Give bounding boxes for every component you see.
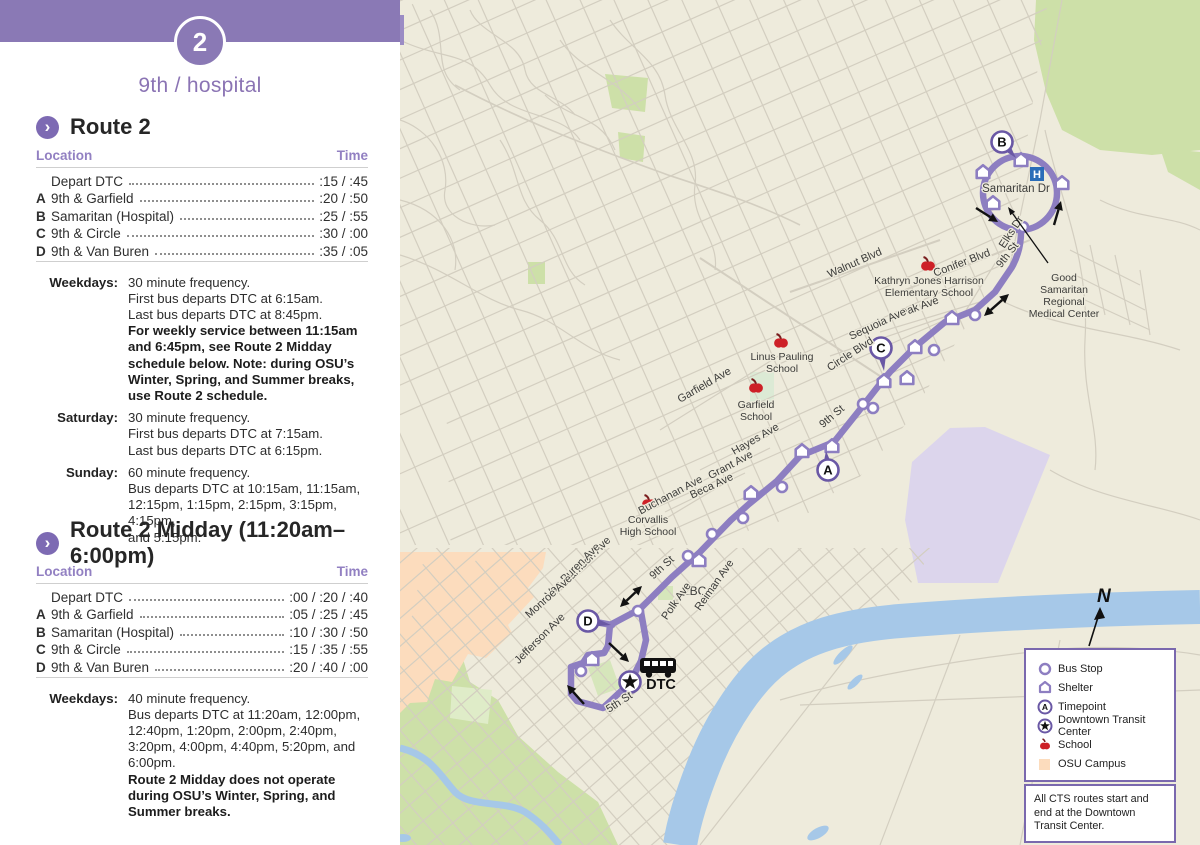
stop-name: Depart DTC	[51, 590, 123, 605]
note-text: 30 minute frequency.First bus departs DT…	[128, 410, 378, 459]
map-label: Samaritan Dr	[982, 183, 1050, 195]
schedule-panel: 2 9th / hospital Route 2 Location Time D…	[0, 0, 400, 845]
stop-name: Samaritan (Hospital)	[51, 209, 174, 224]
route-number-badge: 2	[174, 16, 226, 68]
stop-name: 9th & Van Buren	[51, 660, 149, 675]
divider	[36, 167, 368, 168]
svg-text:N: N	[1097, 586, 1112, 607]
stop-times: :30 / :00	[319, 226, 368, 241]
map-edge-route-fragment	[400, 15, 404, 45]
legend-item-label: Downtown Transit Center	[1058, 714, 1168, 738]
legend-item-label: Shelter	[1058, 682, 1093, 694]
legend-item-dtc: Downtown Transit Center	[1036, 716, 1168, 735]
note-day-label: Saturday:	[36, 410, 118, 459]
svg-text:C: C	[876, 341, 886, 356]
divider	[36, 261, 368, 262]
table-row: BSamaritan (Hospital):25 / :55	[36, 206, 368, 224]
midday-heading-label: Route 2 Midday (11:20am–6:00pm)	[70, 517, 400, 569]
table-row: C9th & Circle:15 / :35 / :55	[36, 640, 368, 658]
dotted-leader	[129, 183, 314, 185]
timepoint-letter: C	[36, 226, 51, 241]
svg-text:D: D	[583, 614, 592, 629]
note-day-label: Weekdays:	[36, 691, 118, 821]
stop-times: :25 / :55	[319, 209, 368, 224]
timepoint-letter: C	[36, 642, 51, 657]
route2-heading: Route 2	[36, 112, 400, 142]
stop-times: :10 / :30 / :50	[289, 625, 368, 640]
stop-times: :20 / :50	[319, 191, 368, 206]
dotted-leader	[127, 651, 284, 653]
timepoint-letter: A	[36, 607, 51, 622]
midday-table: Depart DTC:00 / :20 / :40A9th & Garfield…	[36, 587, 368, 675]
stop-name: Samaritan (Hospital)	[51, 625, 174, 640]
dotted-leader	[155, 253, 314, 255]
stop-times: :00 / :20 / :40	[289, 590, 368, 605]
table-row: D9th & Van Buren:20 / :40 / :00	[36, 657, 368, 675]
svg-text:B: B	[997, 135, 1006, 150]
midday-section: Route 2 Midday (11:20am–6:00pm) Location…	[0, 528, 400, 826]
legend-item-shelter: Shelter	[1036, 678, 1168, 697]
route2-column-headers: Location Time	[36, 148, 368, 163]
legend-item-osu: OSU Campus	[1036, 754, 1168, 773]
legend-item-label: Timepoint	[1058, 701, 1106, 713]
stop-name: 9th & Circle	[51, 642, 121, 657]
legend-item-school: School	[1036, 735, 1168, 754]
divider	[36, 677, 368, 678]
stop-icon	[1036, 660, 1058, 678]
bus-stop-marker	[929, 345, 939, 355]
map-label: CorvallisHigh School	[620, 514, 677, 538]
bus-stop-marker	[633, 606, 643, 616]
stop-name: Depart DTC	[51, 174, 123, 189]
legend-item-label: School	[1058, 739, 1092, 751]
service-note: Weekdays:40 minute frequency.Bus departs…	[36, 691, 400, 821]
table-row: C9th & Circle:30 / :00	[36, 224, 368, 242]
stop-name: 9th & Garfield	[51, 191, 134, 206]
note-text: 40 minute frequency.Bus departs DTC at 1…	[128, 691, 378, 821]
location-column-header: Location	[36, 564, 92, 579]
timepoint-letter: D	[36, 660, 51, 675]
hospital-icon: H	[1030, 167, 1044, 181]
bus-stop-marker	[738, 513, 748, 523]
midday-notes: Weekdays:40 minute frequency.Bus departs…	[36, 691, 400, 821]
stop-times: :05 / :25 / :45	[289, 607, 368, 622]
note-text: 30 minute frequency.First bus departs DT…	[128, 275, 378, 405]
timepoint-icon: A	[1036, 698, 1058, 716]
legend-note-text: All CTS routes start and end at the Down…	[1034, 793, 1149, 832]
bus-stop-marker	[858, 399, 868, 409]
map-legend: Bus StopShelterATimepointDowntown Transi…	[1024, 648, 1176, 843]
bus-stop-marker	[707, 529, 717, 539]
route2-section: Route 2 Location Time Depart DTC:15 / :4…	[0, 112, 400, 552]
stop-times: :35 / :05	[319, 244, 368, 259]
dtc-label: DTC	[646, 677, 676, 693]
service-note: Weekdays:30 minute frequency.First bus d…	[36, 275, 400, 405]
map-label: GarfieldSchool	[738, 399, 775, 423]
shelter-icon	[1036, 679, 1058, 697]
stop-times: :20 / :40 / :00	[289, 660, 368, 675]
stop-times: :15 / :45	[319, 174, 368, 189]
table-row: A9th & Garfield:05 / :25 / :45	[36, 605, 368, 623]
bus-stop-marker	[970, 310, 980, 320]
legend-item-label: Bus Stop	[1058, 663, 1103, 675]
legend-item-label: OSU Campus	[1058, 758, 1126, 770]
legend-note: All CTS routes start and end at the Down…	[1024, 784, 1176, 843]
route2-notes: Weekdays:30 minute frequency.First bus d…	[36, 275, 400, 546]
dotted-leader	[180, 218, 314, 220]
school-icon	[1036, 736, 1058, 754]
svg-text:A: A	[1042, 702, 1048, 712]
note-day-label: Weekdays:	[36, 275, 118, 405]
route2-table: Depart DTC:15 / :45A9th & Garfield:20 / …	[36, 171, 368, 259]
timepoint-letter: D	[36, 244, 51, 259]
service-note: Saturday:30 minute frequency.First bus d…	[36, 410, 400, 459]
dotted-leader	[140, 616, 285, 618]
bus-stop-marker	[576, 666, 586, 676]
transit-schedule-page: 2 9th / hospital Route 2 Location Time D…	[0, 0, 1200, 845]
svg-text:A: A	[823, 463, 833, 478]
chevron-icon	[36, 532, 59, 555]
dotted-leader	[155, 669, 284, 671]
table-row: Depart DTC:15 / :45	[36, 171, 368, 189]
stop-times: :15 / :35 / :55	[289, 642, 368, 657]
stop-name: 9th & Circle	[51, 226, 121, 241]
dotted-leader	[180, 634, 284, 636]
table-row: A9th & Garfield:20 / :50	[36, 189, 368, 207]
table-row: D9th & Van Buren:35 / :05	[36, 241, 368, 259]
page-title: 9th / hospital	[0, 74, 400, 98]
time-column-header: Time	[337, 148, 368, 163]
dotted-leader	[129, 599, 284, 601]
timepoint-letter: A	[36, 191, 51, 206]
chevron-icon	[36, 116, 59, 139]
dotted-leader	[127, 235, 314, 237]
stop-name: 9th & Garfield	[51, 607, 134, 622]
legend-item-stop: Bus Stop	[1036, 659, 1168, 678]
location-column-header: Location	[36, 148, 92, 163]
timepoint-letter: B	[36, 625, 51, 640]
divider	[36, 583, 368, 584]
legend-box: Bus StopShelterATimepointDowntown Transi…	[1024, 648, 1176, 782]
bus-stop-marker	[777, 482, 787, 492]
midday-heading: Route 2 Midday (11:20am–6:00pm)	[36, 528, 400, 558]
osu-icon	[1036, 755, 1058, 773]
dtc-icon	[1036, 717, 1058, 735]
dotted-leader	[140, 200, 315, 202]
stop-name: 9th & Van Buren	[51, 244, 149, 259]
map-label: Kathryn Jones HarrisonElementary School	[874, 275, 984, 299]
route2-heading-label: Route 2	[70, 114, 151, 140]
table-row: BSamaritan (Hospital):10 / :30 / :50	[36, 622, 368, 640]
svg-text:H: H	[1033, 169, 1041, 181]
time-column-header: Time	[337, 564, 368, 579]
table-row: Depart DTC:00 / :20 / :40	[36, 587, 368, 605]
bus-stop-marker	[868, 403, 878, 413]
timepoint-letter: B	[36, 209, 51, 224]
route-map: ABCD DTC H Samaritan DrElks Dr9th StConi…	[400, 0, 1200, 845]
